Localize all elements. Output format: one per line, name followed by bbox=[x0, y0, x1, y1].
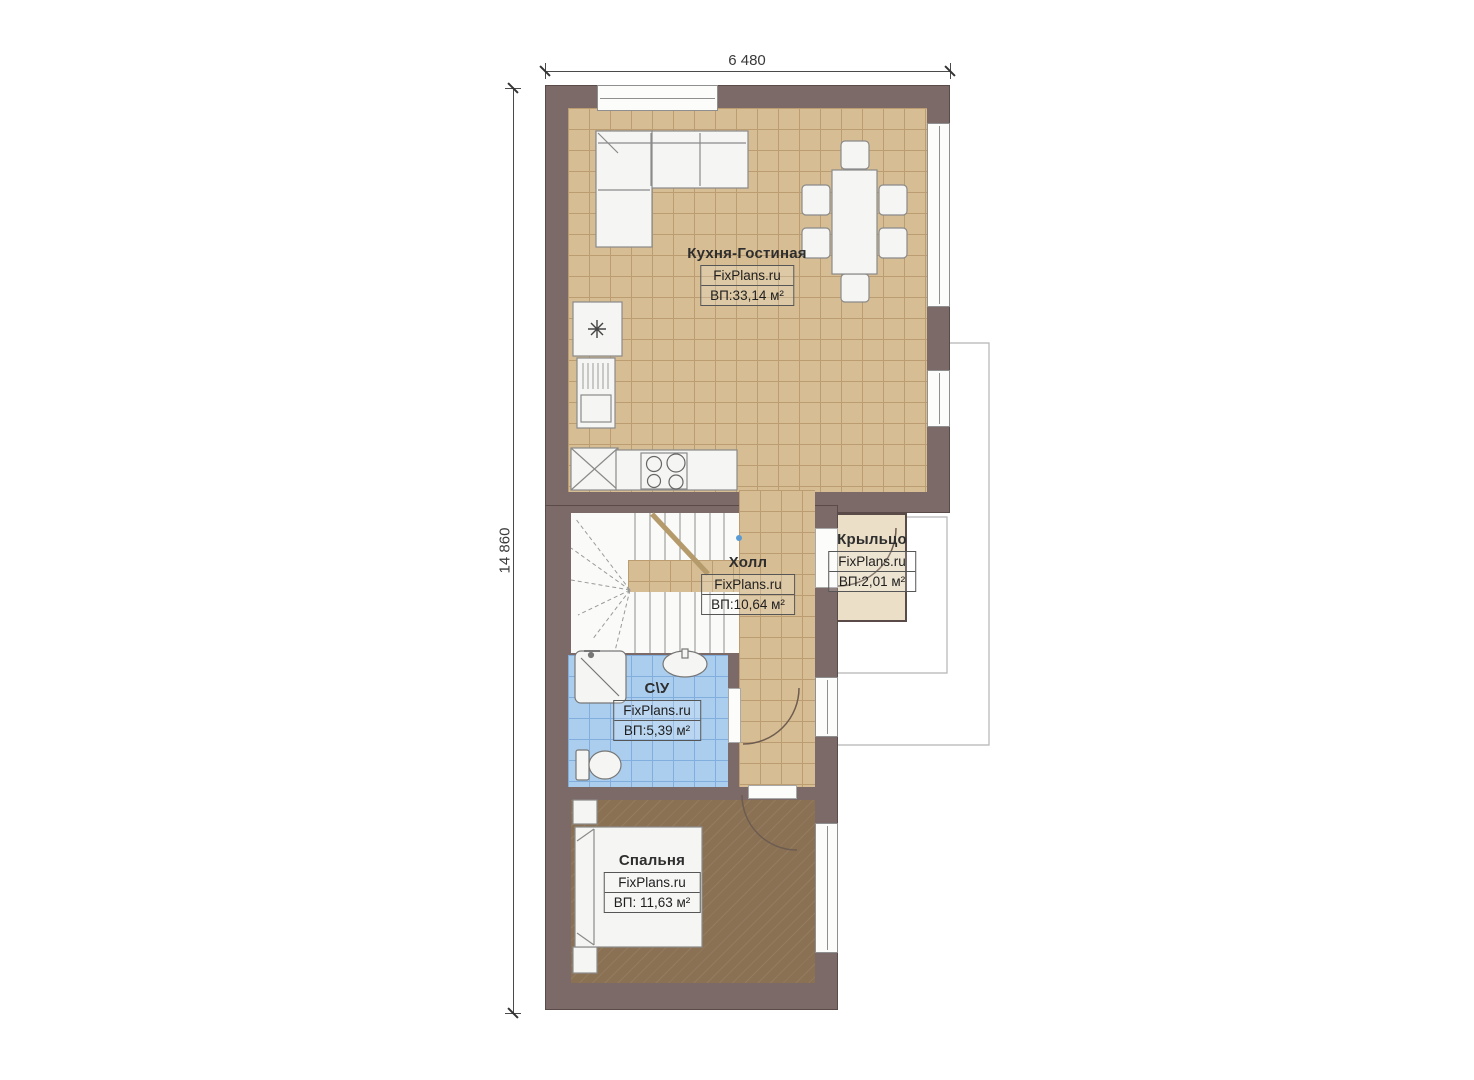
hall-right-window bbox=[815, 677, 838, 737]
room-label-bedroom: Спальня FixPlans.ru ВП: 11,63 м² bbox=[604, 852, 701, 913]
bathroom-door-opening bbox=[728, 688, 741, 743]
kitchen-top-window bbox=[597, 85, 718, 111]
room-name: С\У bbox=[613, 680, 701, 697]
room-info-box: FixPlans.ru ВП:5,39 м² bbox=[613, 700, 701, 741]
room-area-value: ВП:2,01 м² bbox=[829, 572, 915, 591]
dimension-width-label: 6 480 bbox=[697, 52, 797, 69]
hall-corridor-floor bbox=[739, 490, 815, 787]
watermark-text: FixPlans.ru bbox=[702, 575, 794, 595]
room-area-value: ВП:5,39 м² bbox=[614, 721, 700, 740]
room-label-wc: С\У FixPlans.ru ВП:5,39 м² bbox=[613, 680, 701, 741]
room-area-value: ВП: 11,63 м² bbox=[605, 893, 700, 912]
room-name: Кухня-Гостиная bbox=[687, 245, 806, 262]
bedroom-door-opening bbox=[748, 785, 797, 799]
room-name: Крыльцо bbox=[828, 531, 916, 548]
kitchen-right-window-small bbox=[927, 370, 950, 427]
dimension-line bbox=[545, 71, 951, 72]
room-area-value: ВП:10,64 м² bbox=[702, 595, 794, 614]
room-info-box: FixPlans.ru ВП:2,01 м² bbox=[828, 551, 916, 592]
room-info-box: FixPlans.ru ВП:33,14 м² bbox=[700, 265, 794, 306]
room-name: Спальня bbox=[604, 852, 701, 869]
stairwell-area-lower bbox=[571, 560, 628, 653]
room-area-value: ВП:33,14 м² bbox=[701, 286, 793, 305]
watermark-text: FixPlans.ru bbox=[701, 266, 793, 286]
watermark-text: FixPlans.ru bbox=[614, 701, 700, 721]
room-label-kitchen-living: Кухня-Гостиная FixPlans.ru ВП:33,14 м² bbox=[687, 245, 806, 306]
room-info-box: FixPlans.ru ВП: 11,63 м² bbox=[604, 872, 701, 913]
room-name: Холл bbox=[701, 554, 795, 571]
room-label-porch: Крыльцо FixPlans.ru ВП:2,01 м² bbox=[828, 531, 916, 592]
dimension-height-label: 14 860 bbox=[497, 506, 514, 596]
stairwell-area bbox=[571, 513, 739, 560]
watermark-text: FixPlans.ru bbox=[605, 873, 700, 893]
kitchen-right-window-large bbox=[927, 123, 950, 307]
room-label-hall: Холл FixPlans.ru ВП:10,64 м² bbox=[701, 554, 795, 615]
room-info-box: FixPlans.ru ВП:10,64 м² bbox=[701, 574, 795, 615]
bedroom-right-window bbox=[815, 823, 838, 953]
floor-plan-page: Кухня-Гостиная FixPlans.ru ВП:33,14 м² Х… bbox=[0, 0, 1474, 1080]
watermark-text: FixPlans.ru bbox=[829, 552, 915, 572]
